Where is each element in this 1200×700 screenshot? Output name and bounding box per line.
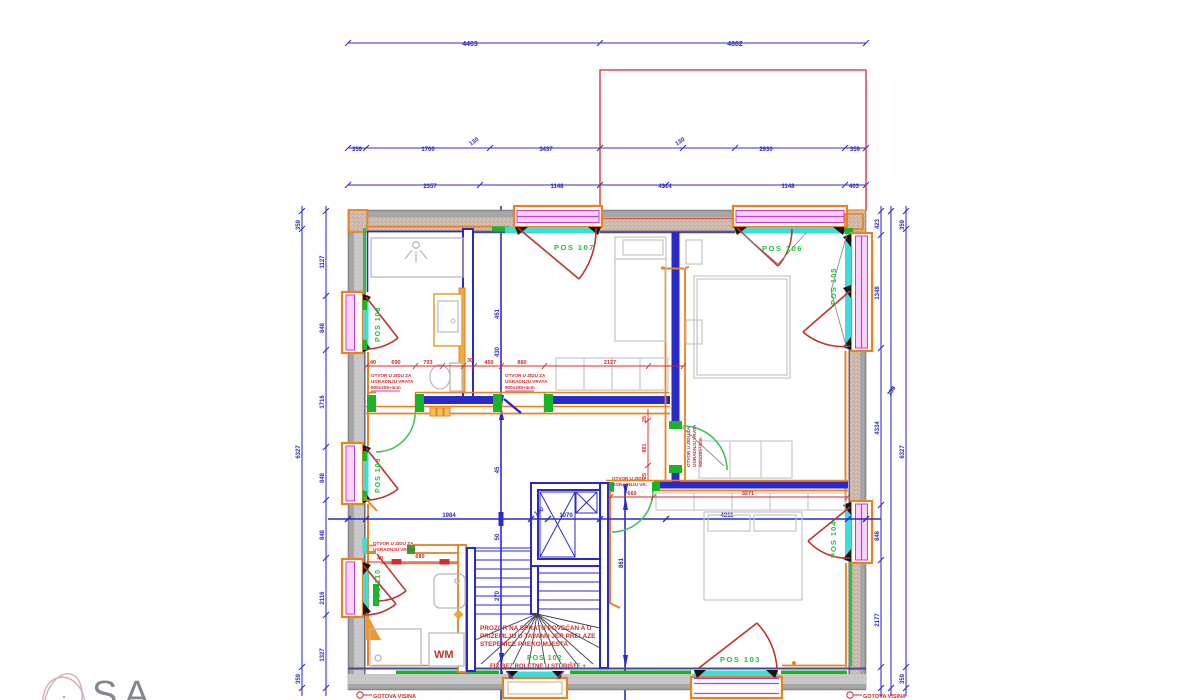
- svg-text:OTVOR U ZIDU ZA: OTVOR U ZIDU ZA: [373, 541, 414, 546]
- svg-text:S: S: [92, 674, 117, 700]
- svg-text:2177: 2177: [875, 613, 881, 627]
- svg-text:359: 359: [352, 147, 363, 153]
- svg-text:3437: 3437: [539, 147, 553, 153]
- svg-text:POS 108: POS 108: [375, 307, 382, 342]
- svg-text:POS 106: POS 106: [762, 244, 803, 253]
- svg-text:FIX BEZ ROLETNE U STUBIŠTE +: FIX BEZ ROLETNE U STUBIŠTE +: [490, 662, 586, 670]
- svg-text:848: 848: [320, 529, 326, 540]
- svg-text:848: 848: [320, 322, 326, 333]
- svg-text:POS 102: POS 102: [527, 655, 562, 662]
- svg-text:PRIZEMLJU U TAVANU JER PRELAZE: PRIZEMLJU U TAVANU JER PRELAZE: [480, 633, 596, 640]
- svg-text:2930: 2930: [759, 147, 773, 153]
- svg-text:6327: 6327: [296, 445, 302, 459]
- svg-text:UGRADNJU VR.: UGRADNJU VR.: [612, 482, 647, 487]
- svg-text:861: 861: [619, 557, 625, 568]
- svg-text:1700: 1700: [421, 147, 435, 153]
- svg-text:UGRADNJU VRATA: UGRADNJU VRATA: [692, 424, 697, 467]
- svg-text:4403: 4403: [462, 41, 478, 48]
- svg-text:680: 680: [415, 554, 424, 560]
- svg-text:PROZOR NA SPRATU POVEĆAN A U: PROZOR NA SPRATU POVEĆAN A U: [480, 623, 592, 632]
- svg-text:2357: 2357: [423, 184, 437, 190]
- svg-text:848: 848: [320, 472, 326, 483]
- svg-text:1127: 1127: [320, 255, 326, 269]
- svg-text:POS 109: POS 109: [375, 458, 382, 493]
- svg-text:703: 703: [423, 360, 432, 366]
- svg-text:POS 110: POS 110: [375, 569, 382, 604]
- svg-text:1148: 1148: [781, 184, 795, 190]
- svg-text:POS 103: POS 103: [720, 655, 761, 664]
- svg-text:359: 359: [850, 147, 861, 153]
- svg-text:OTVOR U ZIDU: OTVOR U ZIDU: [612, 476, 646, 481]
- svg-text:GOTOVA VISINA: GOTOVA VISINA: [863, 694, 906, 700]
- svg-text:4314: 4314: [658, 184, 672, 190]
- svg-text:A: A: [124, 674, 150, 700]
- svg-text:1070: 1070: [559, 513, 573, 519]
- svg-text:30: 30: [467, 358, 473, 364]
- svg-text:1148: 1148: [550, 184, 564, 190]
- svg-text:POS 105: POS 105: [829, 268, 838, 305]
- svg-text:423: 423: [875, 218, 881, 229]
- svg-text:660: 660: [627, 491, 636, 497]
- svg-text:UGRADNJU VRATA: UGRADNJU VRATA: [371, 379, 414, 384]
- svg-text:359: 359: [296, 219, 302, 230]
- svg-text:OTVOR U ZIDU ZA: OTVOR U ZIDU ZA: [505, 373, 546, 378]
- svg-text:UGRADNJU VRATA: UGRADNJU VRATA: [505, 379, 548, 384]
- svg-text:359: 359: [296, 673, 302, 684]
- svg-text:430: 430: [495, 346, 501, 357]
- svg-text:359: 359: [900, 673, 906, 684]
- svg-text:POS 104: POS 104: [829, 521, 838, 558]
- svg-text:STEPENICE PREKO MJESTA: STEPENICE PREKO MJESTA: [480, 641, 568, 648]
- svg-text:OTVOR U ZIDU ZA: OTVOR U ZIDU ZA: [371, 373, 412, 378]
- svg-text:4211: 4211: [720, 513, 734, 519]
- svg-text:880: 880: [517, 360, 526, 366]
- svg-text:450: 450: [484, 360, 493, 366]
- svg-text:1327: 1327: [320, 648, 326, 662]
- svg-text:4882: 4882: [727, 41, 743, 48]
- svg-text:1716: 1716: [320, 395, 326, 409]
- svg-text:40: 40: [377, 556, 383, 562]
- svg-text:451: 451: [495, 308, 501, 319]
- svg-text:40: 40: [370, 360, 376, 366]
- svg-text:2127: 2127: [604, 360, 616, 366]
- svg-text:25: 25: [642, 416, 648, 422]
- svg-text:690: 690: [391, 360, 400, 366]
- svg-text:900x205+4cm: 900x205+4cm: [698, 437, 703, 467]
- svg-text:2116: 2116: [320, 591, 326, 605]
- svg-text:403: 403: [849, 184, 860, 190]
- svg-text:1984: 1984: [442, 513, 456, 519]
- svg-text:50: 50: [495, 533, 501, 540]
- svg-text:359: 359: [900, 219, 906, 230]
- svg-text:900x205+4cm: 900x205+4cm: [371, 385, 401, 390]
- svg-text:POS 107: POS 107: [554, 243, 595, 252]
- svg-text:130: 130: [887, 385, 898, 397]
- svg-text:GOTOVA VISINA: GOTOVA VISINA: [373, 694, 416, 700]
- svg-text:1348: 1348: [875, 286, 881, 300]
- svg-text:3271: 3271: [742, 491, 754, 497]
- svg-text:130: 130: [469, 136, 481, 147]
- svg-text:UGRADNJU VRATA: UGRADNJU VRATA: [373, 547, 416, 552]
- svg-text:45: 45: [495, 466, 501, 473]
- svg-text:900x205+4cm: 900x205+4cm: [505, 385, 535, 390]
- svg-text:848: 848: [875, 530, 881, 541]
- svg-text:6327: 6327: [900, 445, 906, 459]
- svg-text:881: 881: [642, 443, 648, 452]
- svg-text:WM: WM: [434, 649, 454, 661]
- svg-text:OTVOR U ZIDU ZA: OTVOR U ZIDU ZA: [686, 426, 691, 467]
- svg-text:4334: 4334: [875, 421, 881, 435]
